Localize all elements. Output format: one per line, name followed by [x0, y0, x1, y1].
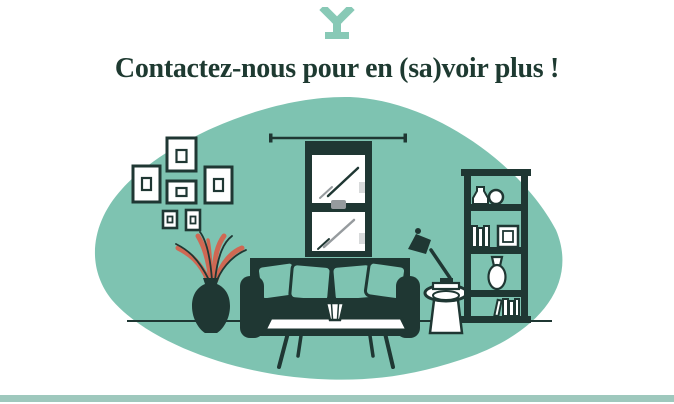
shelf-ball	[489, 190, 503, 204]
picture-frame	[133, 166, 160, 202]
footer-accent-bar	[0, 395, 674, 402]
picture-frame	[167, 181, 196, 203]
table-vase	[326, 303, 344, 320]
living-room-illustration	[0, 0, 674, 404]
rod-finial	[404, 134, 408, 143]
window	[305, 141, 372, 257]
picture-frame	[167, 138, 196, 171]
shelf-picture-frame	[498, 226, 518, 247]
shelf-books	[494, 299, 519, 316]
picture-frame	[186, 210, 200, 230]
contact-section: Contactez-nous pour en (sa)voir plus !	[0, 0, 674, 404]
lamp-knob	[415, 228, 421, 234]
window-latch	[331, 200, 346, 209]
window-pane-bottom	[312, 212, 365, 251]
rod-finial	[269, 134, 273, 143]
sofa-arm-left	[240, 276, 264, 338]
window-pane-top	[312, 155, 365, 203]
lamp-base	[440, 278, 453, 284]
picture-frame	[163, 211, 177, 228]
shelf-books	[472, 226, 489, 247]
picture-frame	[205, 167, 232, 203]
